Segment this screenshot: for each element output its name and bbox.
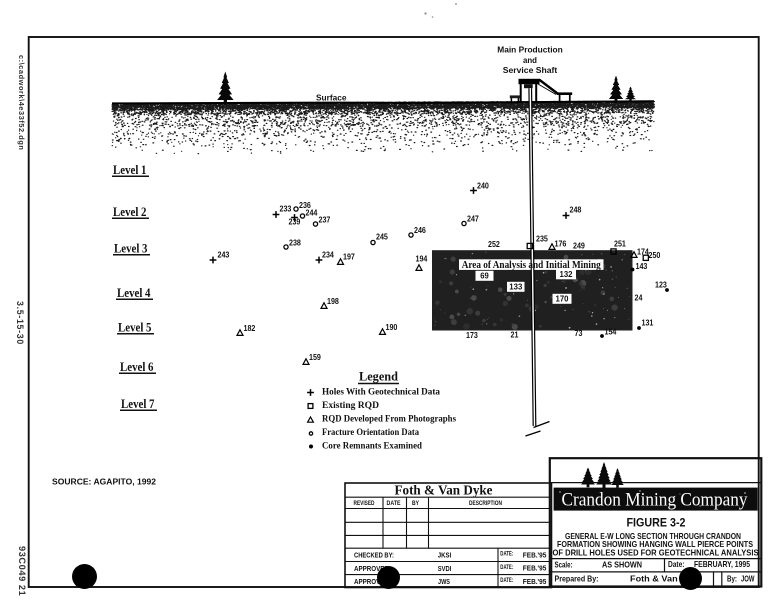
svg-text:123: 123 bbox=[655, 280, 667, 290]
svg-text:240: 240 bbox=[477, 181, 489, 191]
svg-text:237: 237 bbox=[319, 215, 331, 225]
svg-text:132: 132 bbox=[560, 269, 573, 279]
svg-text:Existing RQD: Existing RQD bbox=[322, 401, 379, 411]
svg-text:REVISED: REVISED bbox=[354, 500, 375, 507]
svg-text:JOW: JOW bbox=[741, 574, 755, 584]
svg-text:252: 252 bbox=[488, 239, 500, 249]
svg-text:Date:: Date: bbox=[668, 559, 685, 569]
svg-text:197: 197 bbox=[343, 252, 355, 262]
svg-text:FIGURE 3-2: FIGURE 3-2 bbox=[627, 518, 686, 530]
svg-text:Prepared By:: Prepared By: bbox=[555, 574, 599, 584]
svg-text:170: 170 bbox=[556, 294, 569, 304]
svg-text:159: 159 bbox=[309, 352, 321, 362]
svg-text:Service Shaft: Service Shaft bbox=[503, 65, 558, 75]
svg-text:OF DRILL HOLES USED FOR GEOTEC: OF DRILL HOLES USED FOR GEOTECHNICAL ANA… bbox=[553, 548, 759, 558]
svg-text:DATE: DATE bbox=[387, 500, 402, 507]
svg-text:243: 243 bbox=[218, 250, 230, 260]
svg-text:SVDI: SVDI bbox=[438, 564, 452, 573]
svg-text:246: 246 bbox=[414, 225, 426, 235]
svg-text:Legend: Legend bbox=[359, 370, 398, 384]
svg-text:SOURCE: AGAPITO, 1992: SOURCE: AGAPITO, 1992 bbox=[52, 478, 157, 487]
svg-text:Level 4: Level 4 bbox=[117, 285, 151, 300]
svg-text:JWS: JWS bbox=[438, 577, 450, 586]
svg-text:DATE:: DATE: bbox=[500, 564, 513, 571]
svg-text:250: 250 bbox=[649, 250, 661, 260]
svg-text:Surface: Surface bbox=[316, 93, 347, 103]
svg-text:CHECKED BY:: CHECKED BY: bbox=[354, 551, 394, 560]
svg-text:AS SHOWN: AS SHOWN bbox=[602, 560, 642, 570]
svg-text:Level 2: Level 2 bbox=[113, 204, 147, 219]
svg-text:174: 174 bbox=[637, 247, 649, 257]
svg-text:251: 251 bbox=[614, 239, 626, 249]
svg-text:182: 182 bbox=[244, 323, 256, 333]
svg-text:131: 131 bbox=[642, 318, 654, 328]
svg-text:DESCRIPTION: DESCRIPTION bbox=[469, 500, 502, 507]
svg-text:247: 247 bbox=[467, 214, 479, 224]
svg-text:69: 69 bbox=[480, 271, 489, 281]
svg-text:Level 5: Level 5 bbox=[118, 319, 152, 334]
svg-text:and: and bbox=[523, 55, 537, 65]
svg-text:Level 6: Level 6 bbox=[120, 359, 154, 374]
svg-text:Holes With Geotechnical Data: Holes With Geotechnical Data bbox=[322, 388, 440, 398]
svg-text:DATE:: DATE: bbox=[500, 551, 513, 558]
svg-text:244: 244 bbox=[306, 208, 318, 218]
svg-text:173: 173 bbox=[466, 330, 478, 340]
svg-text:194: 194 bbox=[416, 254, 428, 264]
svg-text:245: 245 bbox=[376, 232, 388, 242]
svg-text:By:: By: bbox=[727, 574, 737, 584]
svg-text:Scale:: Scale: bbox=[555, 560, 573, 570]
svg-text:Main Production: Main Production bbox=[497, 45, 563, 55]
svg-text:249: 249 bbox=[573, 241, 585, 251]
svg-text:238: 238 bbox=[289, 238, 301, 248]
svg-text:JKSI: JKSI bbox=[438, 551, 452, 560]
svg-text:FEBRUARY, 1995: FEBRUARY, 1995 bbox=[694, 559, 750, 569]
svg-text:21: 21 bbox=[511, 330, 519, 340]
svg-text:133: 133 bbox=[509, 282, 522, 292]
svg-text:FEB.'95: FEB.'95 bbox=[523, 577, 547, 586]
svg-text:190: 190 bbox=[386, 322, 398, 332]
svg-text:FEB.'95: FEB.'95 bbox=[523, 564, 547, 573]
svg-text:143: 143 bbox=[636, 261, 648, 271]
svg-text:Foth & Van Dyke: Foth & Van Dyke bbox=[395, 483, 493, 498]
svg-text:24: 24 bbox=[635, 293, 643, 303]
svg-text:DATE:: DATE: bbox=[500, 577, 513, 584]
svg-text:239: 239 bbox=[289, 217, 301, 227]
svg-text:248: 248 bbox=[570, 205, 582, 215]
svg-text:Level 7: Level 7 bbox=[121, 396, 155, 411]
svg-text:234: 234 bbox=[322, 250, 334, 260]
svg-text:198: 198 bbox=[327, 296, 339, 306]
svg-text:Level 3: Level 3 bbox=[114, 240, 148, 255]
svg-text:BY: BY bbox=[412, 500, 420, 507]
svg-text:235: 235 bbox=[536, 234, 548, 244]
svg-text:73: 73 bbox=[575, 328, 583, 338]
svg-text:RQD Developed From Photographs: RQD Developed From Photographs bbox=[322, 415, 456, 425]
svg-text:Crandon Mining Company: Crandon Mining Company bbox=[562, 489, 748, 510]
svg-text:Area of Analysis and Initial M: Area of Analysis and Initial Mining bbox=[462, 260, 602, 271]
svg-text:154: 154 bbox=[605, 327, 617, 337]
svg-text:FEB.'95: FEB.'95 bbox=[523, 550, 547, 559]
svg-text:176: 176 bbox=[555, 239, 567, 249]
svg-text:233: 233 bbox=[280, 204, 292, 214]
svg-text:Level 1: Level 1 bbox=[113, 162, 147, 177]
svg-text:Fracture Orientation Data: Fracture Orientation Data bbox=[322, 428, 419, 438]
svg-text:Core Remnants Examined: Core Remnants Examined bbox=[322, 442, 423, 452]
